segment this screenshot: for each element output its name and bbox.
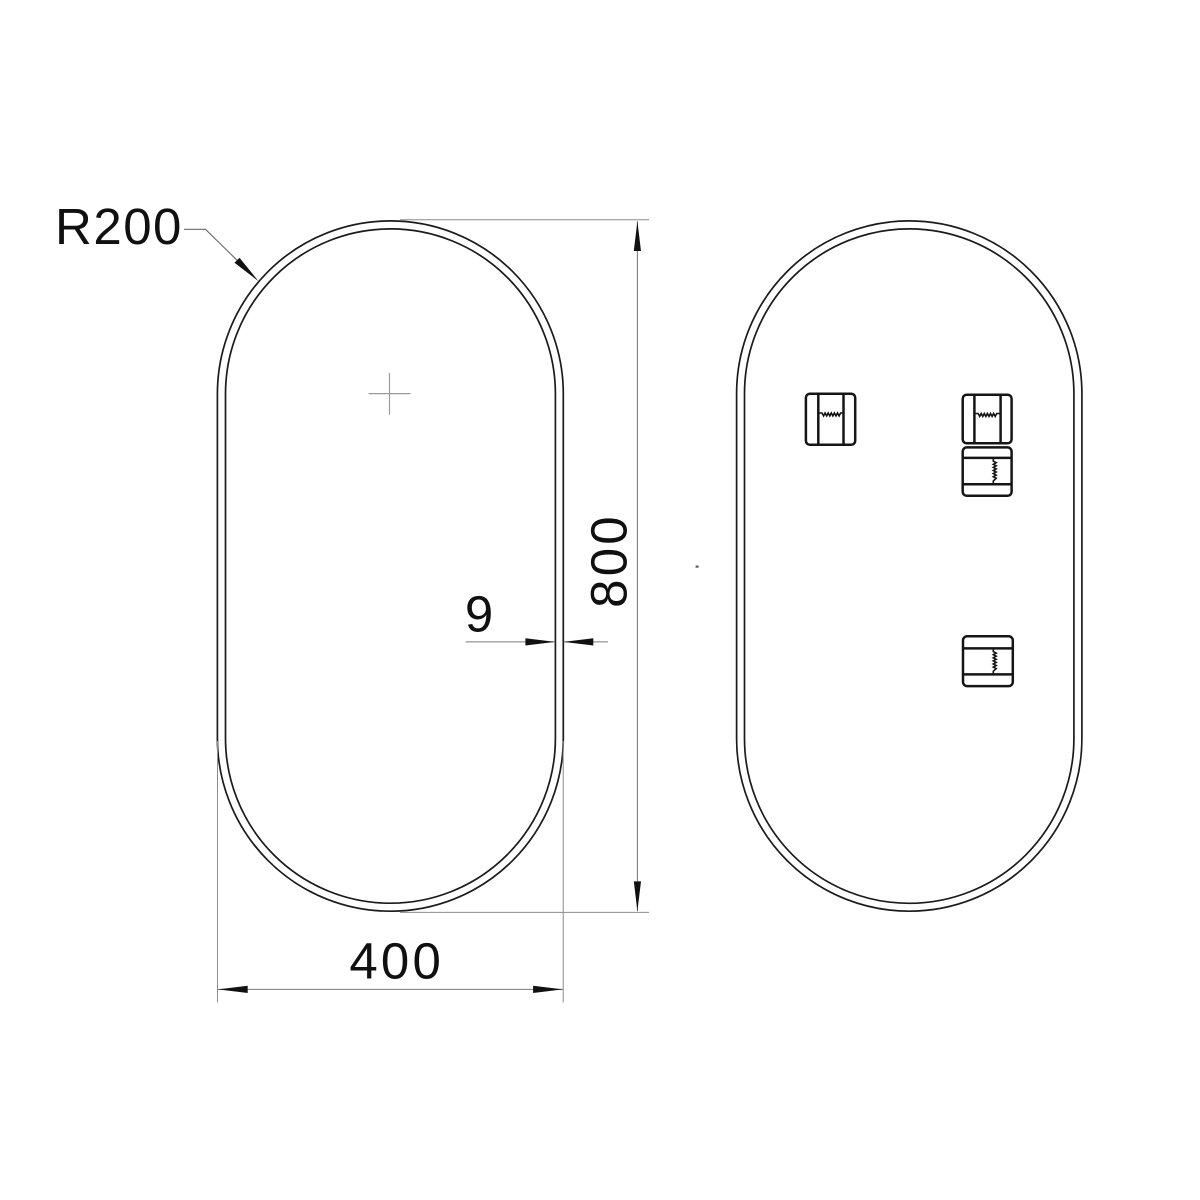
svg-text:800: 800 — [581, 513, 638, 608]
svg-text:R200: R200 — [55, 198, 183, 255]
svg-text:400: 400 — [349, 933, 444, 990]
svg-text:9: 9 — [465, 586, 493, 643]
